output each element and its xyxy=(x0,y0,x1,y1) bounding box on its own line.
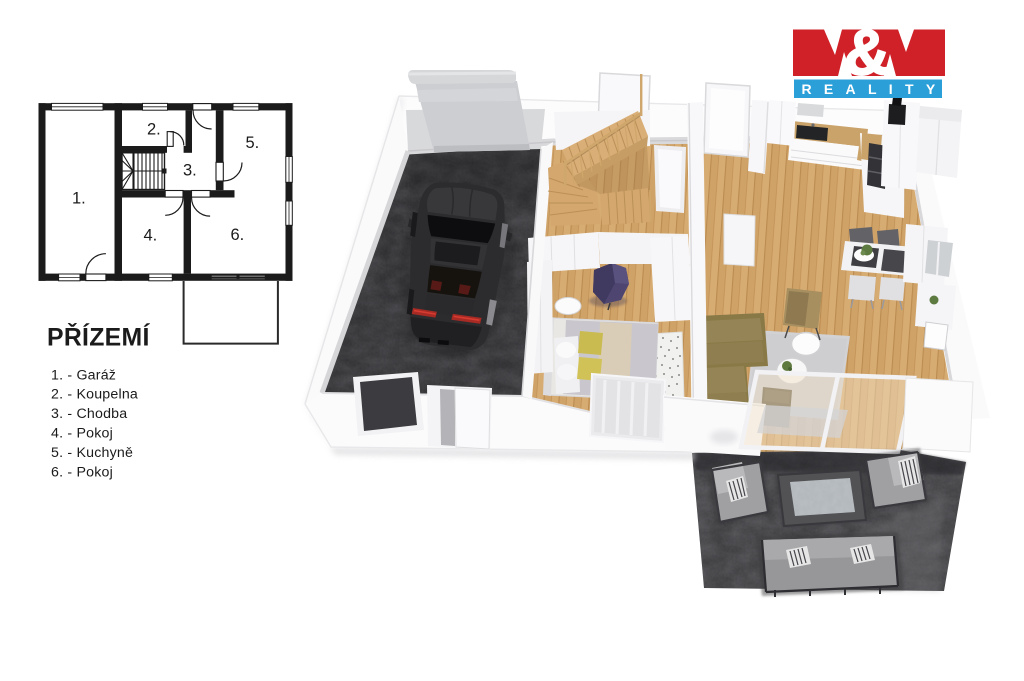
svg-text:4.: 4. xyxy=(144,227,158,245)
svg-text:2. - Koupelna: 2. - Koupelna xyxy=(51,387,138,403)
svg-text:5. - Kuchyně: 5. - Kuchyně xyxy=(51,445,133,461)
svg-text:REALITY: REALITY xyxy=(802,81,948,97)
svg-text:&: & xyxy=(844,17,890,89)
svg-text:2.: 2. xyxy=(147,121,161,139)
svg-text:3. - Chodba: 3. - Chodba xyxy=(51,406,127,422)
svg-text:3.: 3. xyxy=(183,162,197,180)
svg-text:PŘÍZEMÍ: PŘÍZEMÍ xyxy=(47,324,150,352)
svg-text:1. - Garáž: 1. - Garáž xyxy=(51,367,116,383)
svg-text:5.: 5. xyxy=(246,134,260,152)
svg-text:4. - Pokoj: 4. - Pokoj xyxy=(51,426,113,442)
svg-text:6. - Pokoj: 6. - Pokoj xyxy=(51,464,113,480)
svg-text:6.: 6. xyxy=(231,226,245,244)
svg-text:1.: 1. xyxy=(72,190,86,208)
